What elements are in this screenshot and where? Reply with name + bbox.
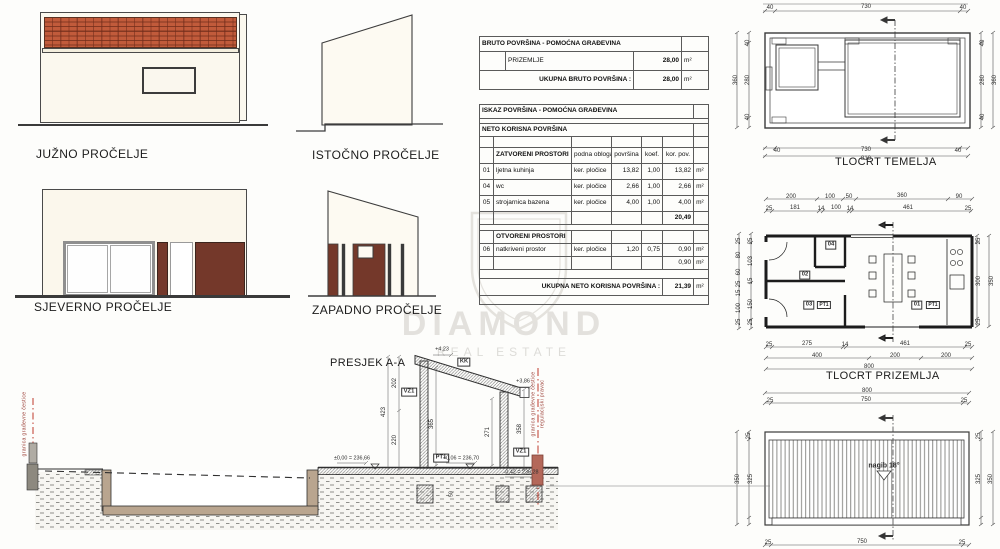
- label-foundation-plan: TLOCRT TEMELJA: [835, 156, 937, 168]
- label-east-facade: ISTOČNO PROČELJE: [312, 148, 440, 162]
- glass-pane: [110, 245, 151, 293]
- north-door: [170, 242, 193, 297]
- bruto-row-label: PRIZEMLJE: [506, 52, 634, 71]
- section-drawing: [27, 353, 770, 530]
- table-row: 05strojarnica bazenaker. pločice4,001,00…: [480, 196, 709, 212]
- north-panel-left: [157, 242, 168, 297]
- east-facade-drawing: [296, 15, 443, 131]
- neto-total-label: UKUPNA NETO KORISNA POVRŠINA :: [480, 279, 663, 296]
- neto-total-value: 21,39: [663, 279, 694, 296]
- table-row: 04wcker. pločice2,661,002,66m²: [480, 180, 709, 196]
- bruto-total-label: UKUPNA BRUTO POVRŠINA :: [480, 71, 634, 90]
- bruto-total-value: 28,00: [634, 71, 682, 90]
- north-facade-drawing: [15, 186, 290, 300]
- ground-floor-plan-drawing: [737, 197, 991, 371]
- roof-plan-drawing: [735, 391, 995, 547]
- iskaz-table-title: ISKAZ POVRŠINA - POMOĆNA GRAĐEVINA: [480, 105, 694, 119]
- south-window: [142, 67, 196, 94]
- south-fascia: [42, 48, 239, 53]
- label-west-facade: ZAPADNO PROČELJE: [312, 303, 442, 317]
- west-facade-drawing: [308, 191, 436, 296]
- south-corner-strip: [239, 14, 247, 121]
- table-row: 06natkriveni prostorker. pločice1,200,75…: [480, 244, 709, 257]
- bruto-table-title: BRUTO POVRŠINA - POMOĆNA GRAĐEVINA: [480, 37, 682, 52]
- open-subtotal: 0,90: [663, 257, 694, 270]
- iskaz-table: ISKAZ POVRŠINA - POMOĆNA GRAĐEVINA NETO …: [479, 104, 709, 305]
- label-north-facade: SJEVERNO PROČELJE: [34, 300, 172, 314]
- col-header: ZATVORENI PROSTORI: [494, 148, 572, 164]
- blueprint-canvas: DIAMOND REAL ESTATE: [0, 0, 1000, 549]
- foundation-plan-drawing: [735, 4, 995, 158]
- label-section: PRESJEK A-A: [330, 357, 405, 369]
- open-title: OTVORENI PROSTORI: [494, 231, 572, 244]
- bruto-table: BRUTO POVRŠINA - POMOĆNA GRAĐEVINA PRIZE…: [479, 36, 709, 90]
- glass-pane: [67, 245, 108, 293]
- south-roof-tiles: [44, 17, 237, 48]
- label-ground-floor-plan: TLOCRT PRIZEMLJA: [826, 370, 940, 382]
- table-row: 01ljetna kuhinjaker. pločice13,821,0013,…: [480, 164, 709, 180]
- north-ground-line: [15, 295, 290, 298]
- south-facade-drawing: [18, 5, 268, 127]
- north-panel-right: [195, 242, 245, 297]
- closed-subtotal: 20,49: [663, 212, 694, 225]
- neto-title: NETO KORISNA POVRŠINA: [480, 124, 694, 137]
- north-sliding-glass-door: [63, 241, 155, 297]
- south-ground-line: [18, 124, 268, 126]
- bruto-row-value: 28,00: [634, 52, 682, 71]
- label-south-facade: JUŽNO PROČELJE: [36, 147, 148, 161]
